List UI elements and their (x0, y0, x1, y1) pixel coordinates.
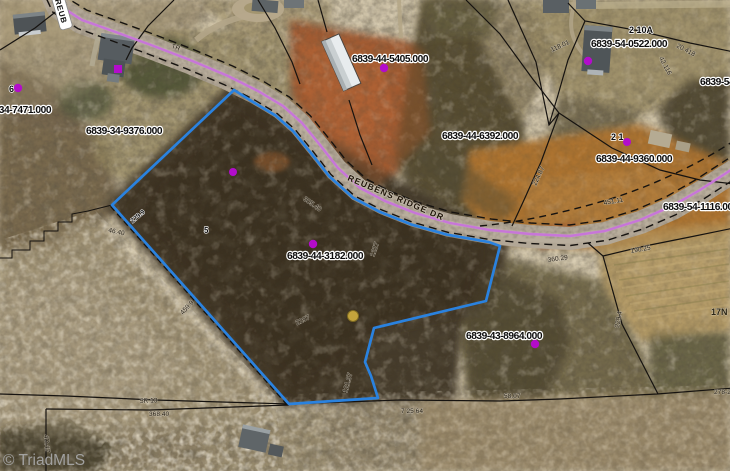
svg-text:6839-54-0522.000: 6839-54-0522.000 (591, 39, 668, 50)
svg-text:6839-34-9376.000: 6839-34-9376.000 (86, 126, 163, 137)
svg-text:278-2: 278-2 (714, 389, 730, 396)
svg-text:5: 5 (204, 226, 209, 235)
svg-text:58.07: 58.07 (504, 393, 521, 400)
svg-text:6: 6 (9, 84, 14, 94)
svg-text:6839-54-1116.000: 6839-54-1116.000 (663, 202, 730, 213)
svg-text:5R 13: 5R 13 (140, 397, 158, 405)
svg-text:6839-44-3182.000: 6839-44-3182.000 (287, 251, 364, 262)
svg-text:6839-34-7471.000: 6839-34-7471.000 (0, 105, 52, 116)
svg-text:7 25 64: 7 25 64 (401, 408, 423, 415)
svg-text:368.40: 368.40 (149, 411, 170, 418)
svg-text:2 10A: 2 10A (629, 25, 654, 35)
svg-text:2 1: 2 1 (611, 132, 624, 142)
svg-text:6839-44-9360.000: 6839-44-9360.000 (596, 154, 673, 165)
svg-text:6839-44-6392.000: 6839-44-6392.000 (442, 131, 519, 142)
svg-text:6839-54-0380.000: 6839-54-0380.000 (700, 77, 730, 88)
svg-text:6839-44-5405.000: 6839-44-5405.000 (352, 54, 429, 65)
svg-text:© TriadMLS: © TriadMLS (3, 452, 85, 469)
svg-text:6839-43-8964.000: 6839-43-8964.000 (466, 331, 543, 342)
svg-text:17N: 17N (711, 307, 728, 317)
